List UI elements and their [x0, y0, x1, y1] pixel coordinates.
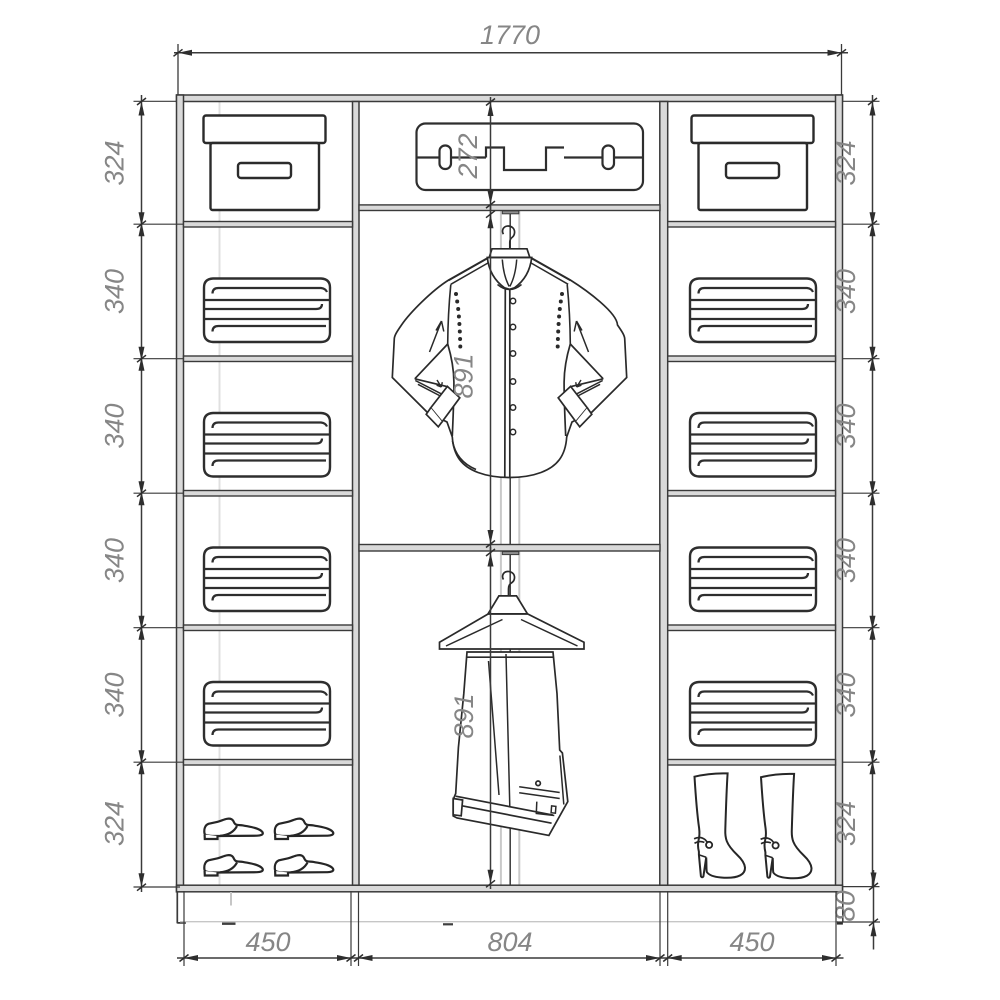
svg-text:891: 891: [449, 353, 479, 398]
svg-text:340: 340: [100, 672, 130, 717]
svg-text:272: 272: [453, 133, 483, 179]
svg-text:80: 80: [830, 890, 861, 922]
svg-text:450: 450: [245, 927, 290, 957]
svg-text:340: 340: [831, 672, 861, 717]
svg-text:324: 324: [100, 801, 130, 846]
svg-text:340: 340: [831, 403, 861, 448]
svg-text:340: 340: [831, 269, 861, 314]
svg-text:324: 324: [100, 140, 130, 185]
svg-text:324: 324: [831, 801, 861, 846]
svg-text:450: 450: [729, 927, 774, 957]
svg-text:340: 340: [100, 538, 130, 583]
svg-text:340: 340: [100, 269, 130, 314]
svg-text:1770: 1770: [480, 20, 540, 50]
svg-text:891: 891: [449, 693, 479, 738]
svg-text:804: 804: [487, 927, 532, 957]
svg-text:340: 340: [100, 403, 130, 448]
svg-text:324: 324: [831, 140, 861, 185]
svg-text:340: 340: [831, 538, 861, 583]
